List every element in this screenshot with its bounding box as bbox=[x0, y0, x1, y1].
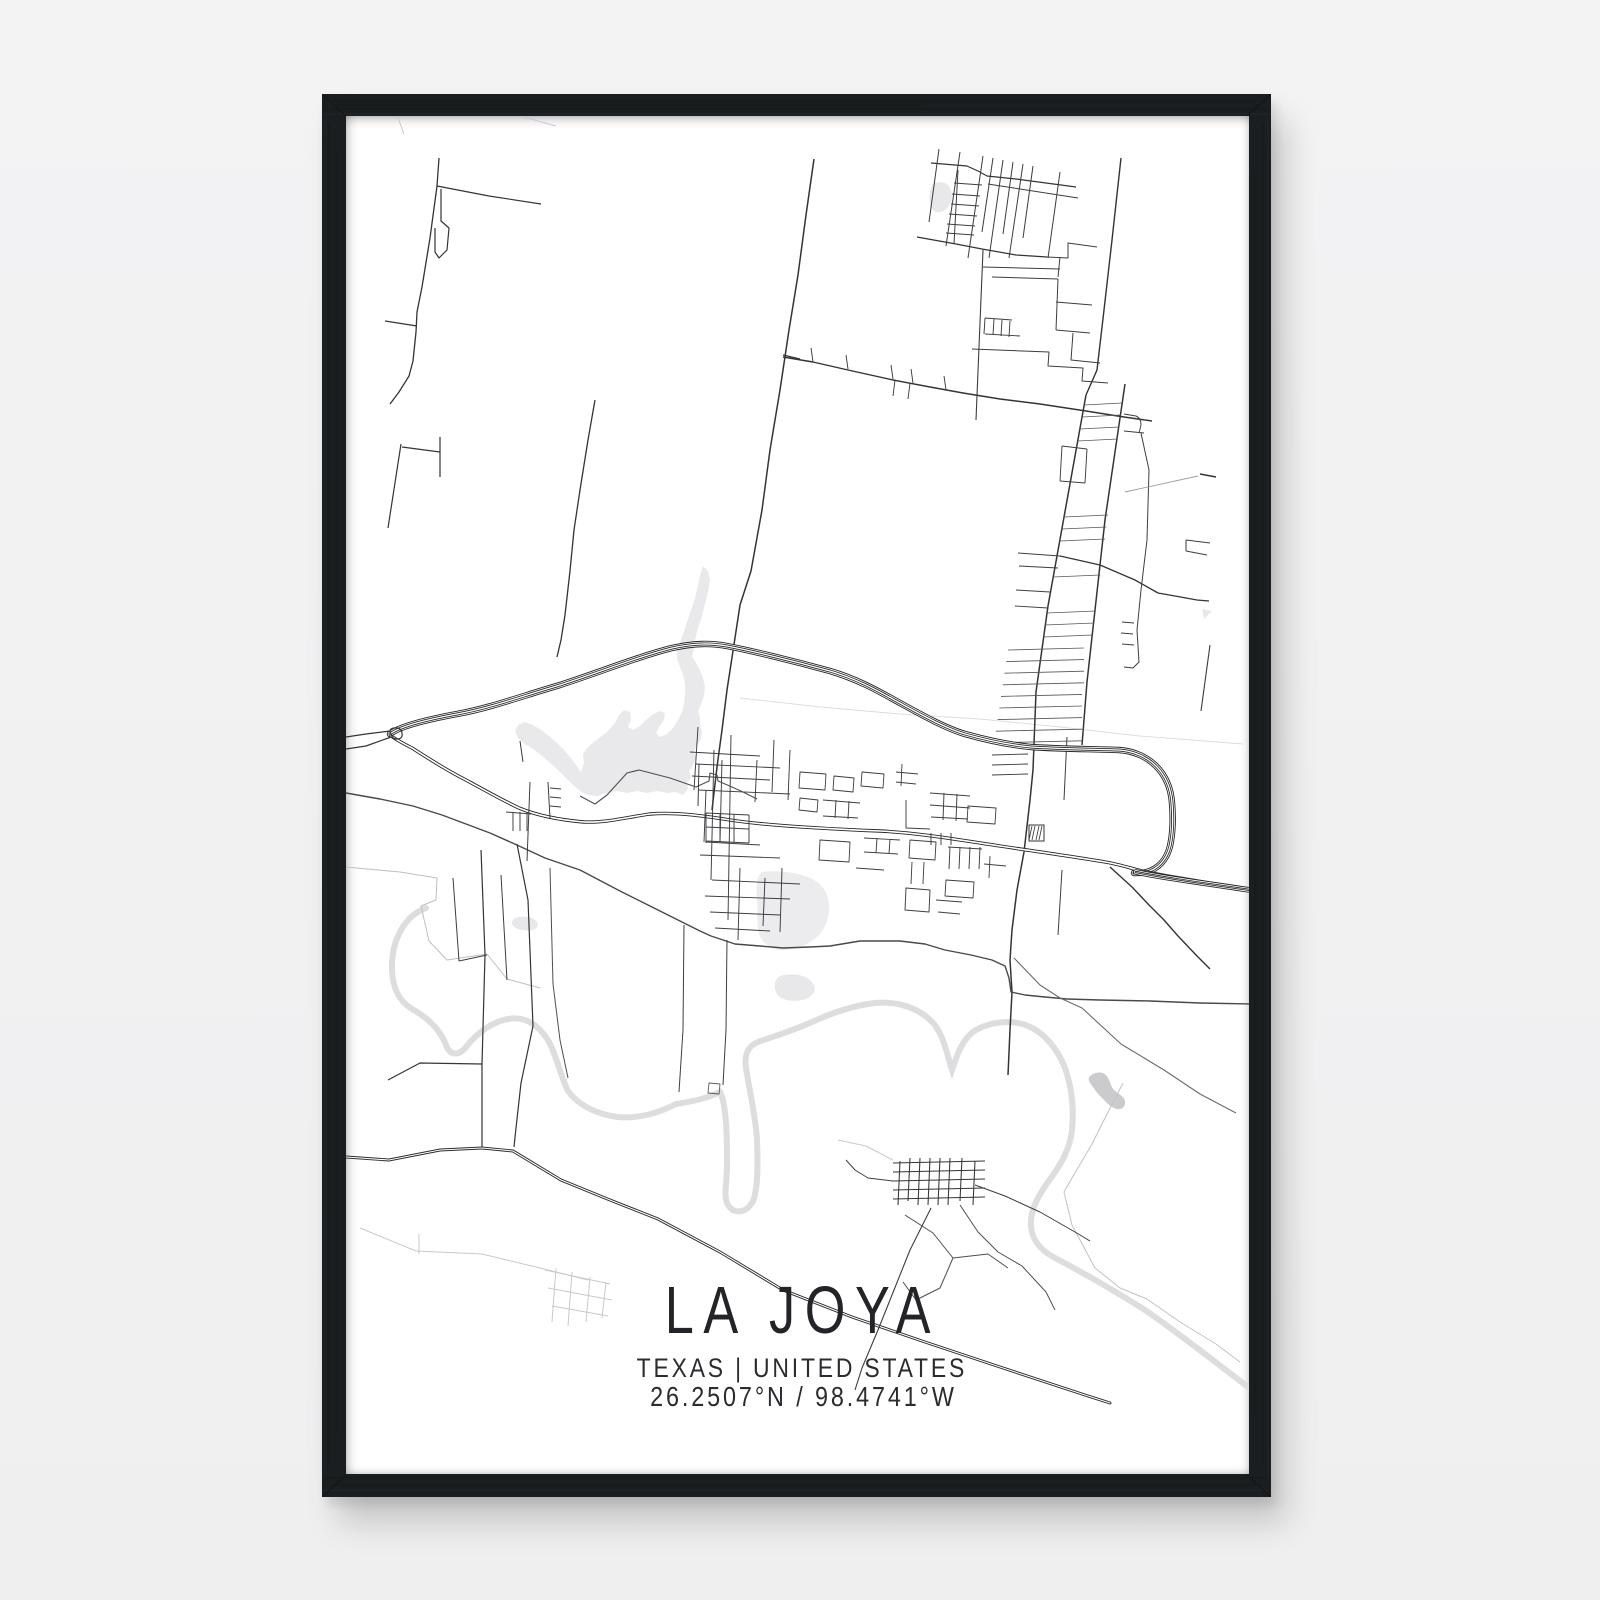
svg-text:TEXAS | UNITED STATES: TEXAS | UNITED STATES bbox=[637, 1353, 967, 1383]
svg-text:LA JOYA: LA JOYA bbox=[665, 1273, 940, 1348]
svg-text:26.2507°N / 98.4741°W: 26.2507°N / 98.4741°W bbox=[650, 1382, 957, 1412]
